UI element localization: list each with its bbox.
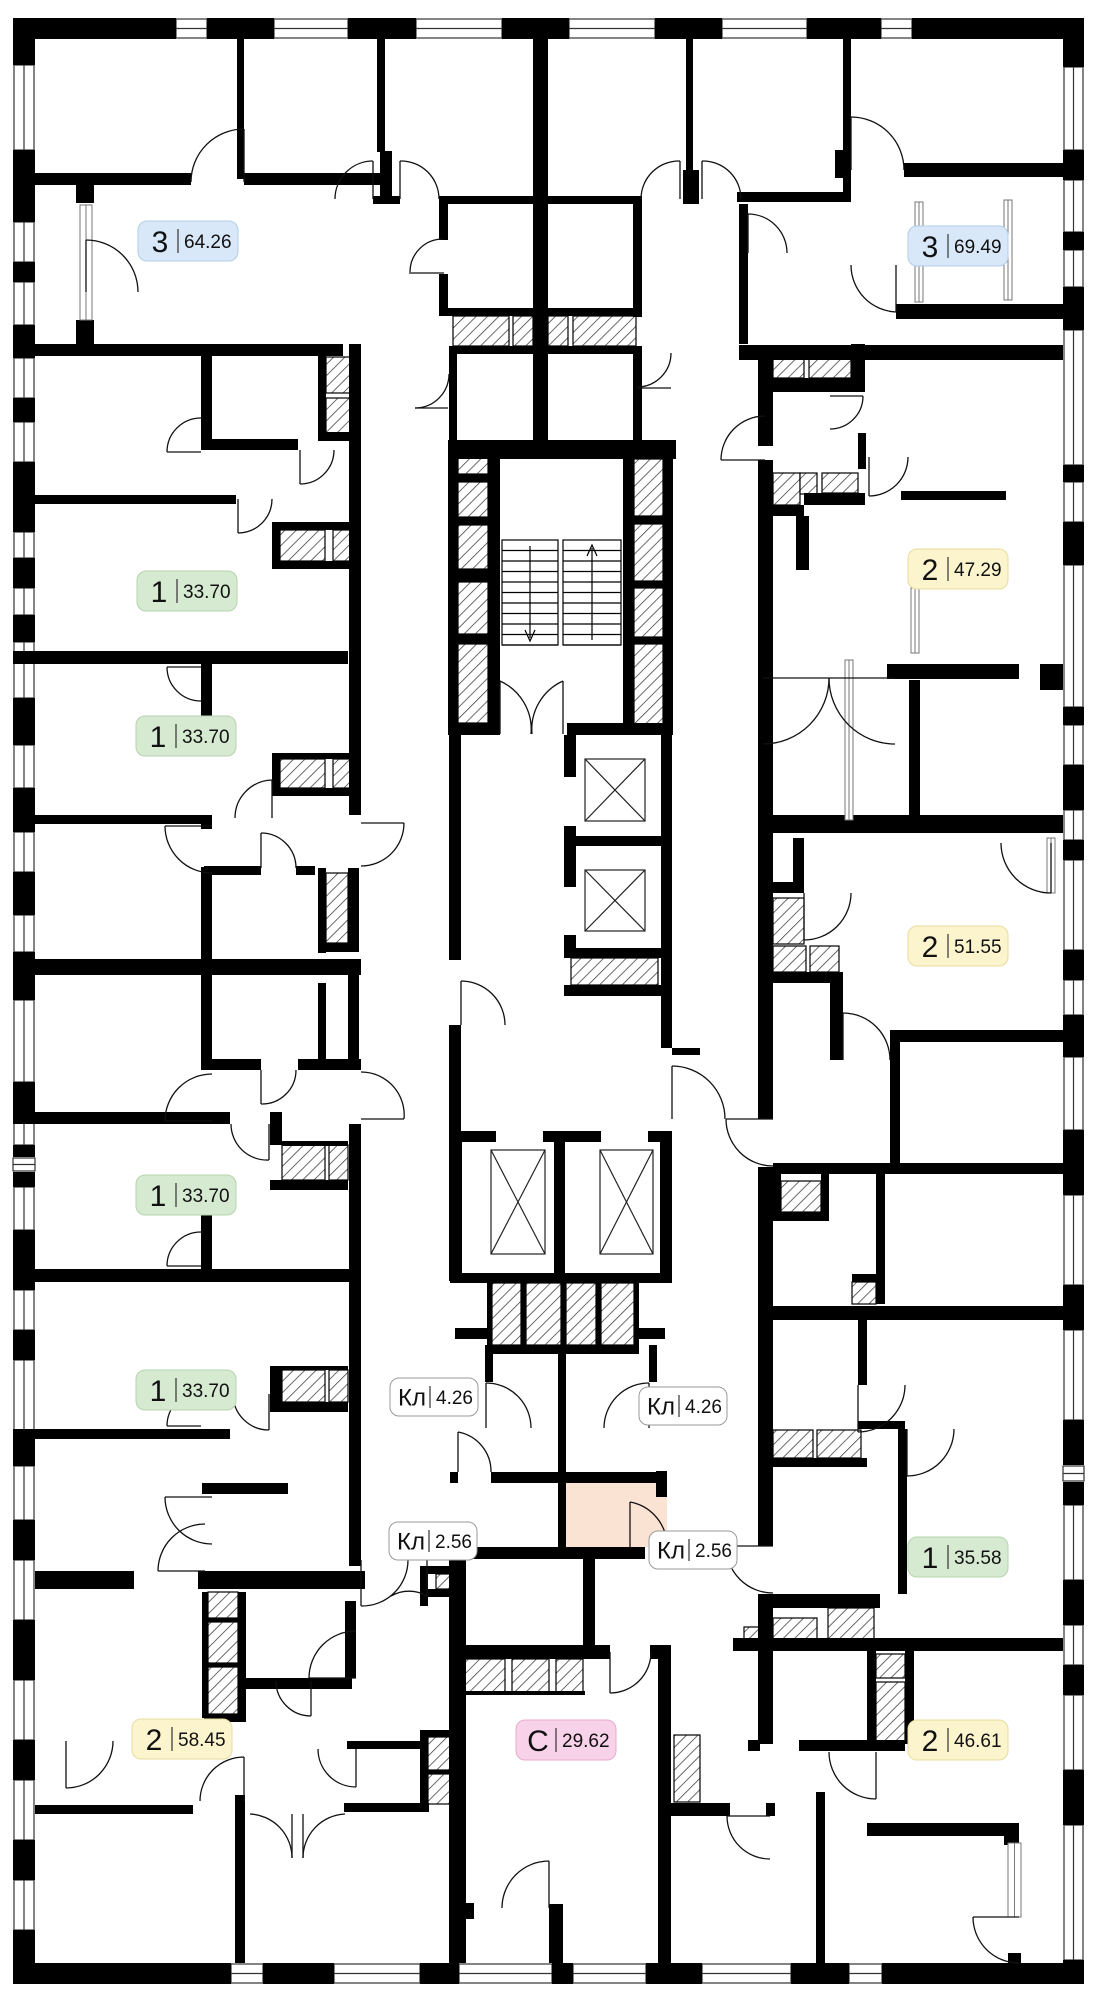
svg-text:3: 3 [922,231,939,264]
svg-text:33.70: 33.70 [183,582,231,603]
svg-text:1: 1 [150,721,167,754]
svg-text:46.61: 46.61 [954,1731,1002,1752]
svg-text:4.26: 4.26 [436,1388,473,1409]
svg-text:64.26: 64.26 [184,232,232,253]
svg-text:1: 1 [150,1375,167,1408]
svg-text:29.62: 29.62 [562,1731,610,1752]
svg-text:51.55: 51.55 [954,937,1002,958]
svg-text:58.45: 58.45 [178,1730,226,1751]
svg-text:2: 2 [922,931,939,964]
svg-text:2.56: 2.56 [435,1532,472,1553]
svg-text:33.70: 33.70 [182,1381,230,1402]
svg-text:4.26: 4.26 [685,1397,722,1418]
svg-text:1: 1 [150,1180,167,1213]
svg-text:2: 2 [146,1724,163,1757]
svg-text:2.56: 2.56 [695,1541,732,1562]
svg-text:35.58: 35.58 [954,1548,1002,1569]
svg-text:Кл: Кл [398,1385,426,1412]
svg-text:33.70: 33.70 [182,1186,230,1207]
svg-text:Кл: Кл [397,1529,425,1556]
svg-text:33.70: 33.70 [182,727,230,748]
svg-text:2: 2 [922,1725,939,1758]
svg-text:Кл: Кл [657,1538,685,1565]
svg-text:2: 2 [922,554,939,587]
svg-text:Кл: Кл [647,1394,675,1421]
svg-text:1: 1 [151,576,168,609]
svg-text:69.49: 69.49 [954,237,1002,258]
svg-text:C: C [527,1725,549,1758]
svg-text:3: 3 [152,226,169,259]
svg-text:47.29: 47.29 [954,560,1002,581]
svg-text:1: 1 [922,1542,939,1575]
